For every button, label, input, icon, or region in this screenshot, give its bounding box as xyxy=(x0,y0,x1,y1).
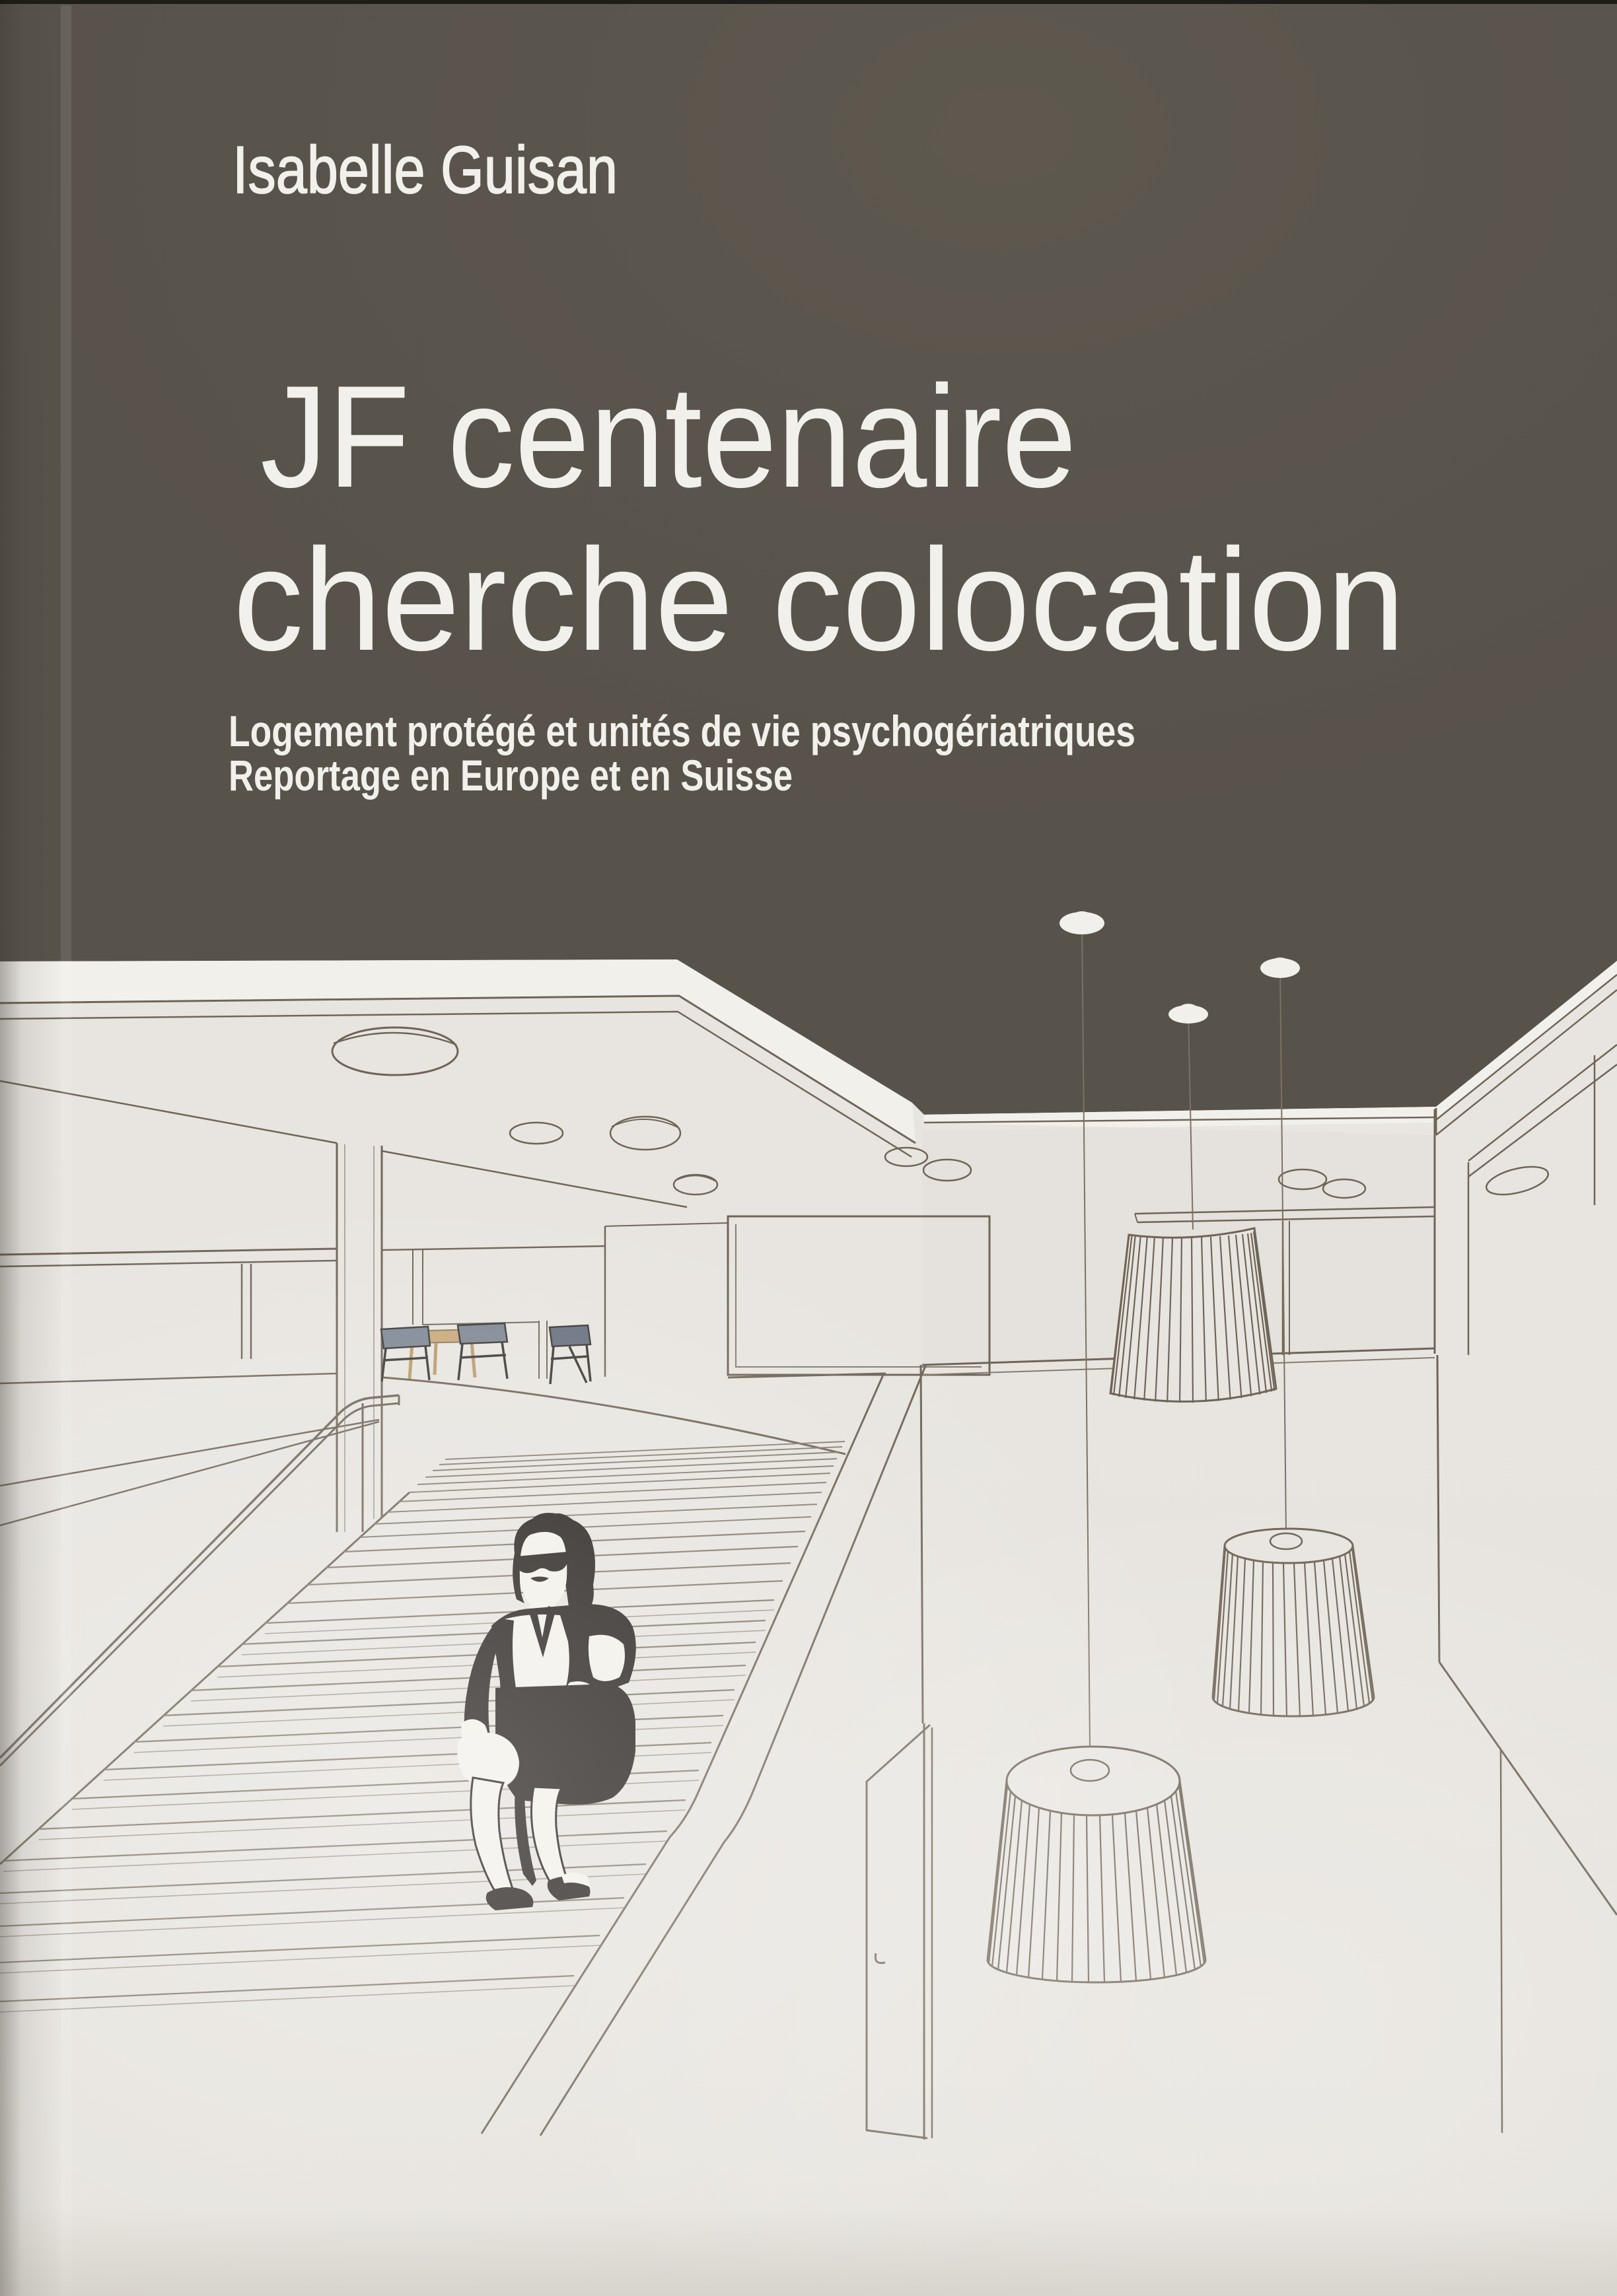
svg-text:Reportage en Europe et en Suis: Reportage en Europe et en Suisse xyxy=(229,751,793,800)
svg-text:cherche colocation: cherche colocation xyxy=(233,518,1405,681)
svg-text:JF centenaire: JF centenaire xyxy=(260,355,1077,518)
svg-text:Logement protégé et unités de: Logement protégé et unités de vie psycho… xyxy=(229,707,1135,755)
svg-text:Isabelle Guisan: Isabelle Guisan xyxy=(233,133,618,207)
